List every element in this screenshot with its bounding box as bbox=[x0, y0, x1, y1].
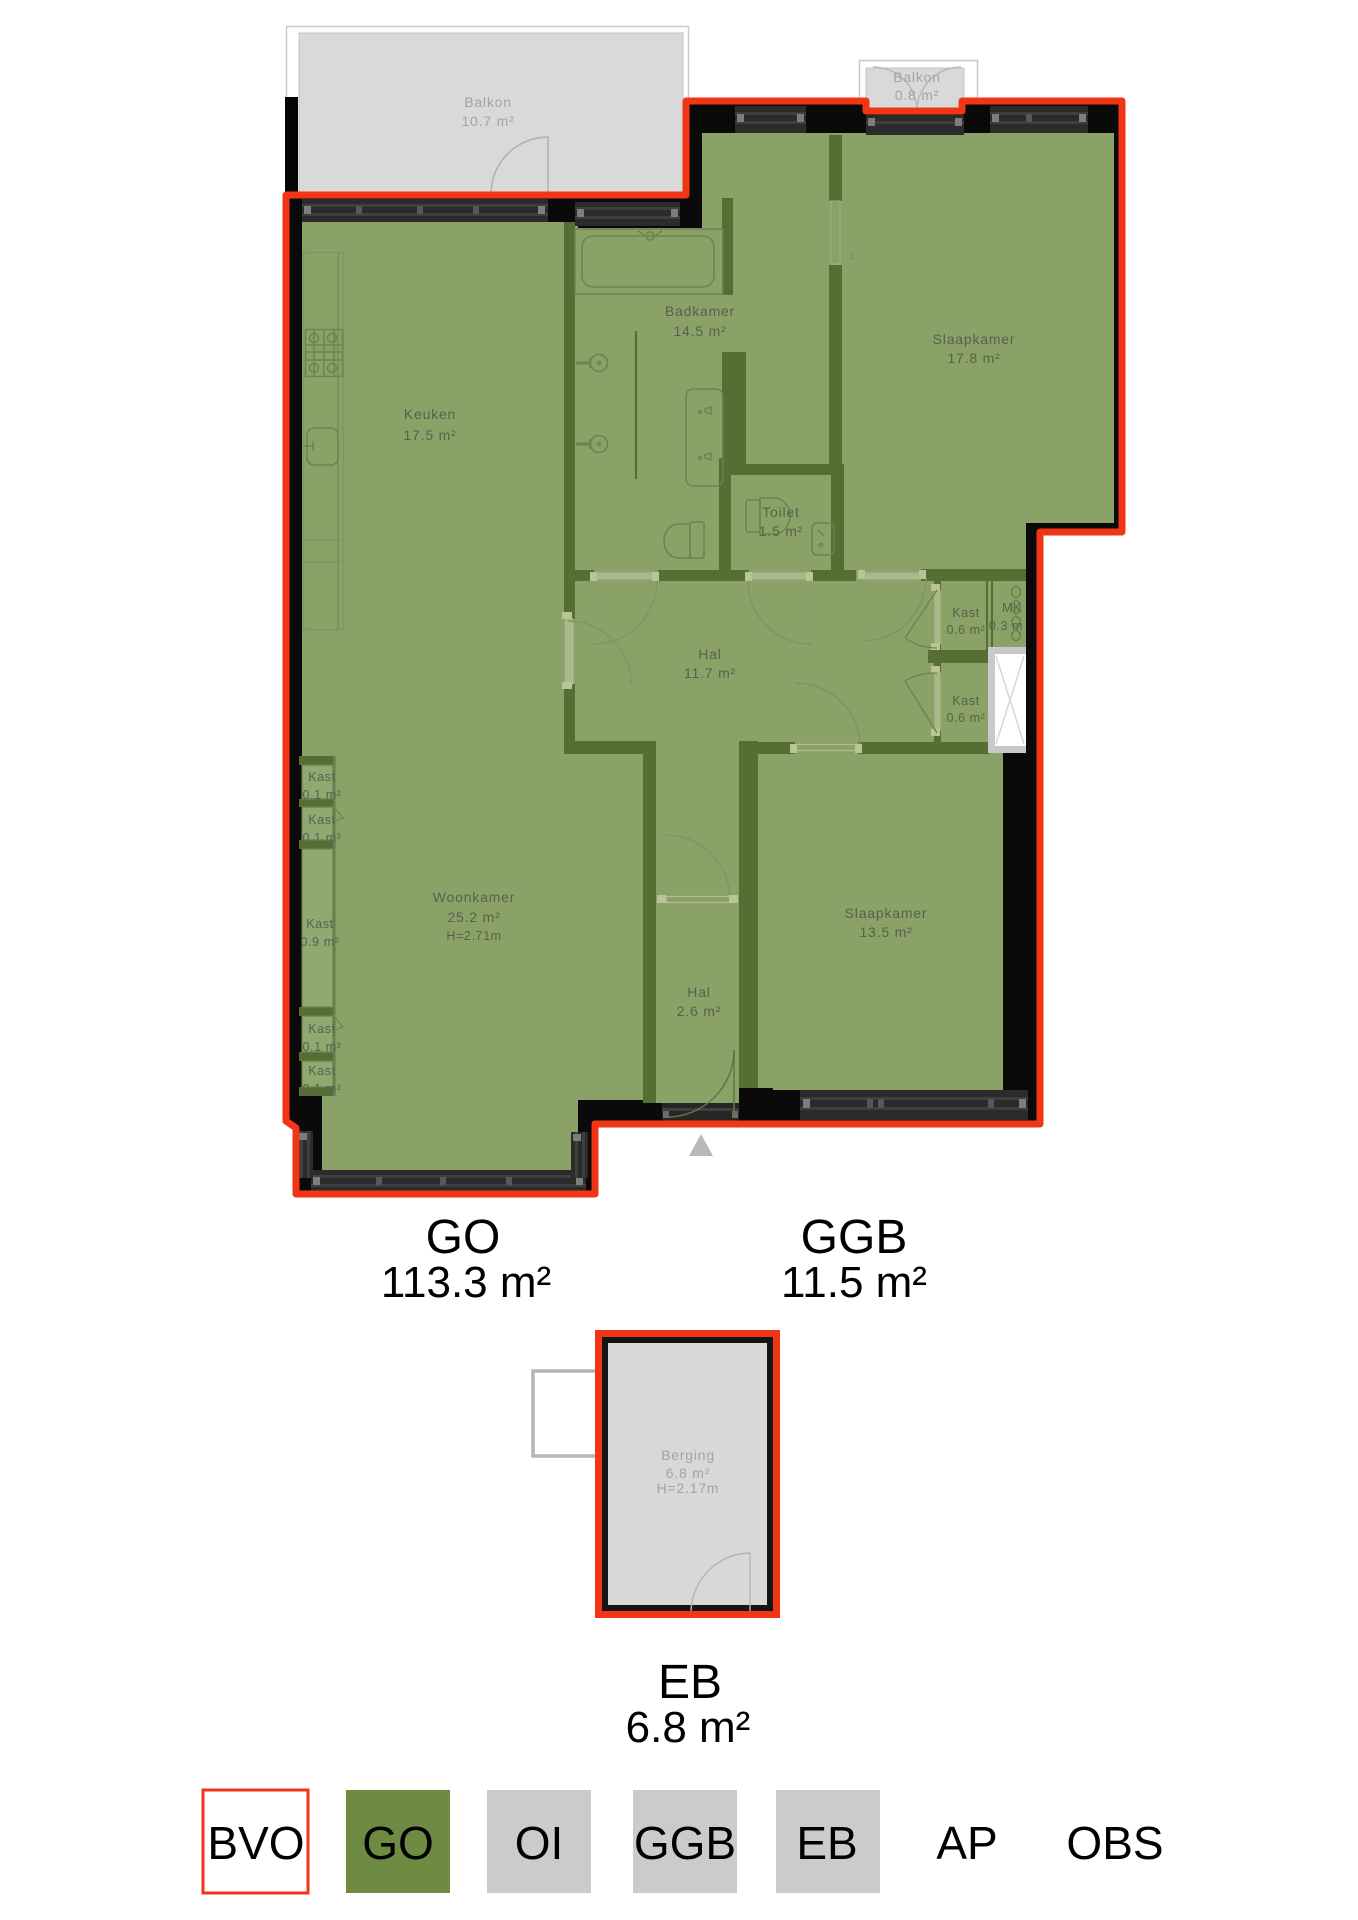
svg-text:OBS: OBS bbox=[1066, 1817, 1163, 1869]
svg-text:Badkamer: Badkamer bbox=[665, 303, 735, 319]
svg-text:Kast: Kast bbox=[306, 917, 333, 931]
svg-text:Berging: Berging bbox=[661, 1447, 715, 1463]
svg-text:Balkon: Balkon bbox=[464, 94, 512, 110]
svg-text:GO: GO bbox=[362, 1817, 434, 1869]
svg-text:0.1 m²: 0.1 m² bbox=[302, 1040, 341, 1054]
svg-text:10.7 m²: 10.7 m² bbox=[461, 113, 514, 129]
svg-text:Balkon: Balkon bbox=[893, 69, 941, 85]
svg-text:6.8 m²: 6.8 m² bbox=[626, 1703, 751, 1752]
svg-text:Kast: Kast bbox=[952, 694, 979, 708]
svg-text:BVO: BVO bbox=[207, 1817, 304, 1869]
svg-text:Kast: Kast bbox=[308, 770, 335, 784]
svg-text:Slaapkamer: Slaapkamer bbox=[933, 331, 1016, 347]
svg-text:0.1 m²: 0.1 m² bbox=[302, 788, 341, 802]
svg-text:13.5 m²: 13.5 m² bbox=[859, 924, 912, 940]
svg-text:0.6 m²: 0.6 m² bbox=[946, 711, 985, 725]
svg-text:GGB: GGB bbox=[634, 1817, 736, 1869]
svg-text:11.7 m²: 11.7 m² bbox=[684, 665, 736, 681]
svg-text:Kast: Kast bbox=[308, 813, 335, 827]
svg-text:1: 1 bbox=[849, 251, 855, 262]
svg-text:MK: MK bbox=[1002, 601, 1022, 615]
svg-text:0.1 m²: 0.1 m² bbox=[302, 1082, 341, 1096]
svg-text:GO: GO bbox=[426, 1211, 501, 1264]
svg-text:17.5 m²: 17.5 m² bbox=[403, 427, 456, 443]
svg-text:EB: EB bbox=[658, 1656, 722, 1709]
svg-text:Woonkamer: Woonkamer bbox=[433, 889, 515, 905]
svg-text:0.6 m²: 0.6 m² bbox=[946, 623, 985, 637]
svg-text:2.6 m²: 2.6 m² bbox=[677, 1003, 721, 1019]
svg-text:11.5 m²: 11.5 m² bbox=[781, 1258, 927, 1307]
svg-text:H=2.17m: H=2.17m bbox=[657, 1480, 720, 1496]
svg-text:25.2 m²: 25.2 m² bbox=[447, 909, 500, 925]
svg-text:1.5 m²: 1.5 m² bbox=[759, 523, 803, 539]
svg-text:Toilet: Toilet bbox=[762, 504, 799, 520]
svg-text:Kast: Kast bbox=[308, 1022, 335, 1036]
svg-text:14.5 m²: 14.5 m² bbox=[673, 323, 726, 339]
svg-text:17.8 m²: 17.8 m² bbox=[947, 350, 1000, 366]
svg-text:AP: AP bbox=[936, 1817, 997, 1869]
svg-text:113.3 m²: 113.3 m² bbox=[381, 1258, 551, 1307]
svg-text:H=2.71m: H=2.71m bbox=[446, 929, 501, 943]
svg-text:0.8 m²: 0.8 m² bbox=[895, 87, 939, 103]
svg-text:GGB: GGB bbox=[801, 1211, 908, 1264]
svg-text:0.9 m²: 0.9 m² bbox=[300, 935, 339, 949]
svg-text:0.3 m: 0.3 m bbox=[989, 619, 1023, 633]
svg-text:6.8 m²: 6.8 m² bbox=[666, 1465, 710, 1481]
svg-text:EB: EB bbox=[796, 1817, 857, 1869]
svg-text:Hal: Hal bbox=[698, 646, 721, 662]
svg-text:Hal: Hal bbox=[687, 984, 710, 1000]
svg-text:OI: OI bbox=[515, 1817, 564, 1869]
svg-text:Kast: Kast bbox=[952, 606, 979, 620]
svg-text:Slaapkamer: Slaapkamer bbox=[845, 905, 928, 921]
svg-text:Keuken: Keuken bbox=[404, 406, 456, 422]
svg-text:Kast: Kast bbox=[308, 1064, 335, 1078]
svg-text:0.1 m²: 0.1 m² bbox=[302, 831, 341, 845]
